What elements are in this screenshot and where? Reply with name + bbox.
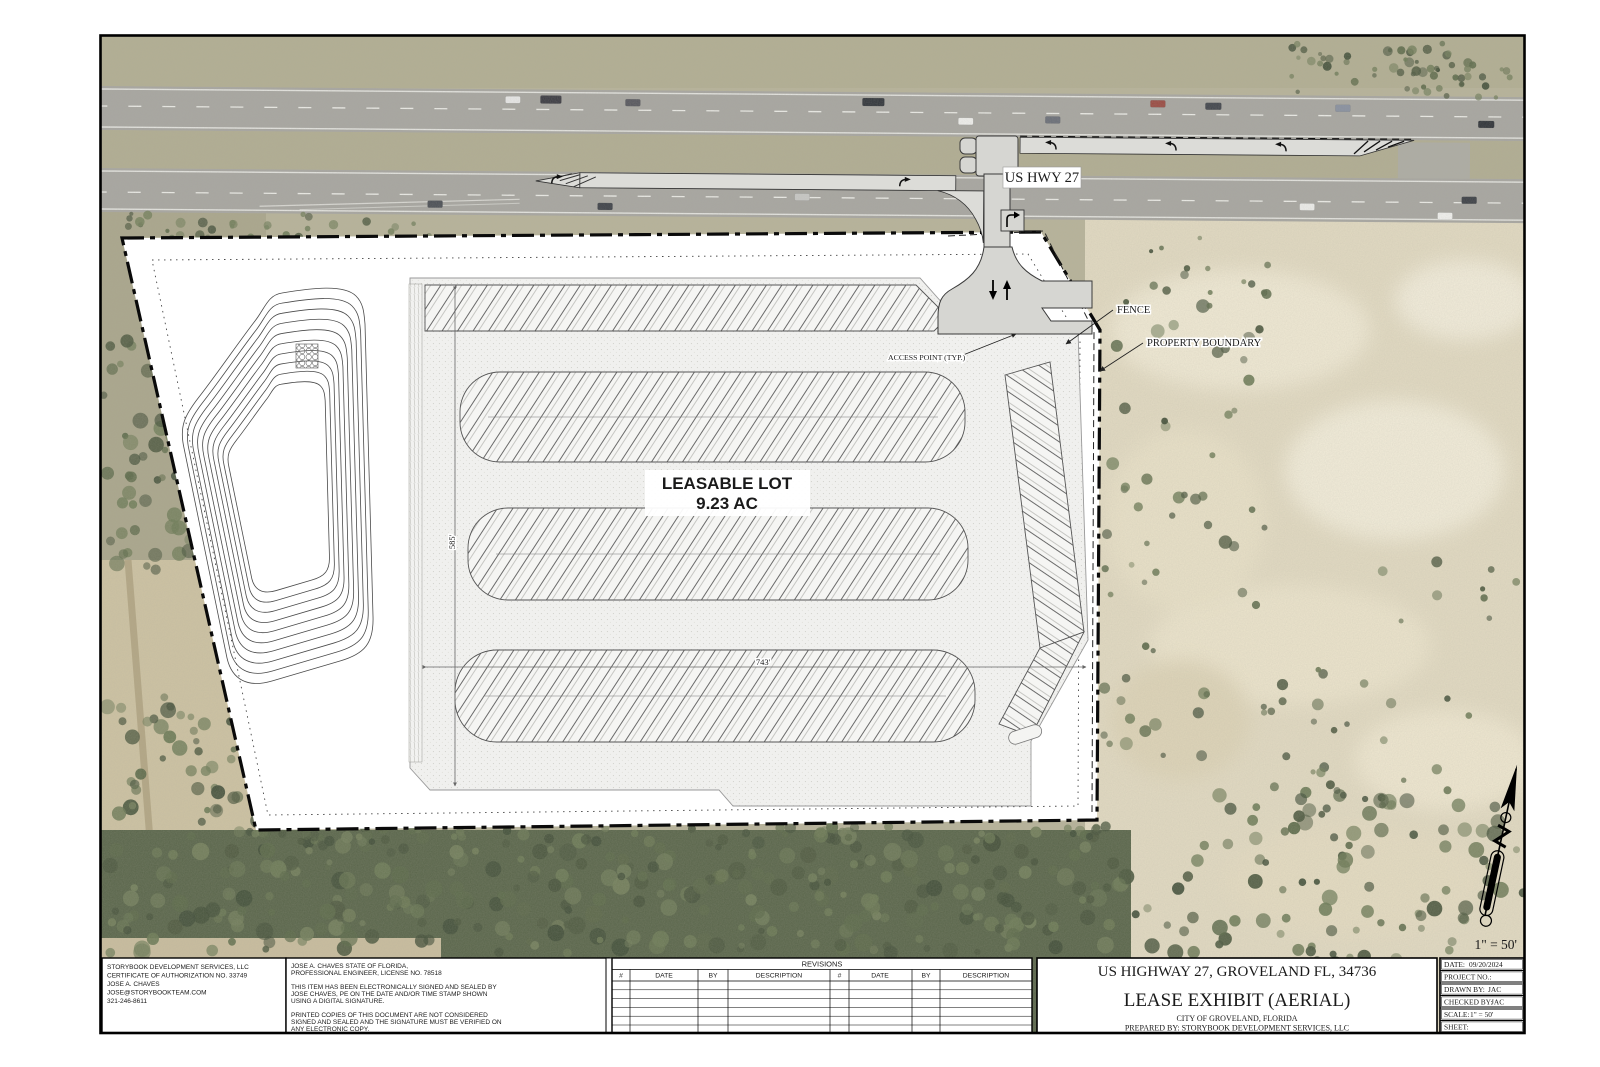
firm-line: STORYBOOK DEVELOPMENT SERVICES, LLC xyxy=(107,964,249,971)
aerial-photo: 585' 743' xyxy=(60,36,1581,1037)
sheet-label: SHEET: xyxy=(1444,1023,1469,1032)
spacer-box xyxy=(606,958,612,1033)
seal-line: PRINTED COPIES OF THIS DOCUMENT ARE NOT … xyxy=(291,1012,488,1019)
dim-vertical-text: 585' xyxy=(447,534,457,549)
firm-line: 321-246-8611 xyxy=(107,998,147,1005)
scale-value: 1" = 50' xyxy=(1470,1010,1494,1019)
col-date: DATE xyxy=(871,973,889,980)
firm-line: CERTIFICATE OF AUTHORIZATION NO. 33749 xyxy=(107,973,248,980)
access-point-label: ACCESS POINT (TYP.) xyxy=(888,353,966,362)
lot-label: LEASABLE LOT 9.23 AC xyxy=(645,470,810,516)
sheet-title: LEASE EXHIBIT (AERIAL) xyxy=(1124,990,1351,1011)
median-bulb xyxy=(960,157,977,173)
lease-exhibit-sheet: 585' 743' xyxy=(0,0,1600,1067)
date-value: 09/20/2024 xyxy=(1469,960,1503,969)
project-city: CITY OF GROVELAND, FLORIDA xyxy=(1176,1014,1297,1023)
title-strip: STORYBOOK DEVELOPMENT SERVICES, LLC CERT… xyxy=(102,958,1524,1033)
checked-by-value: JAC xyxy=(1491,998,1504,1007)
highway-label: US HWY 27 xyxy=(1003,167,1081,188)
decel-lane xyxy=(580,173,956,191)
firm-line: JOSE@STORYBOOKTEAM.COM xyxy=(107,990,207,997)
col-desc: DESCRIPTION xyxy=(963,973,1010,980)
seal-line: USING A DIGITAL SIGNATURE. xyxy=(291,998,385,1005)
lot-edge-strip xyxy=(409,284,422,762)
project-address: US HIGHWAY 27, GROVELAND FL, 34736 xyxy=(1098,964,1377,980)
seal-line: JOSE CHAVES, PE ON THE DATE AND/OR TIME … xyxy=(291,991,488,998)
col-num: # xyxy=(619,973,623,980)
seal-line: SIGNED AND SEALED AND THE SIGNATURE MUST… xyxy=(291,1019,502,1026)
dim-horizontal-text: 743' xyxy=(756,657,771,667)
property-boundary-label: PROPERTY BOUNDARY xyxy=(1147,338,1262,349)
drawn-by-label: DRAWN BY: xyxy=(1444,985,1485,994)
seal-line: THIS ITEM HAS BEEN ELECTRONICALLY SIGNED… xyxy=(291,984,497,991)
parking-row-top xyxy=(425,285,948,331)
revisions-title: REVISIONS xyxy=(802,960,843,969)
prepared-by: PREPARED BY: STORYBOOK DEVELOPMENT SERVI… xyxy=(1125,1024,1349,1033)
firm-line: JOSE A. CHAVES xyxy=(107,981,160,988)
scale-label: SCALE: xyxy=(1444,1010,1469,1019)
col-date: DATE xyxy=(655,973,673,980)
lot-area-text: 9.23 AC xyxy=(696,494,758,513)
highway-label-text: US HWY 27 xyxy=(1005,170,1079,186)
turn-arrow-box xyxy=(1001,210,1024,231)
project-no-label: PROJECT NO.: xyxy=(1444,973,1492,982)
seal-line: JOSE A. CHAVES STATE OF FLORIDA, xyxy=(291,963,408,970)
date-label: DATE: xyxy=(1444,960,1465,969)
fence-label: FENCE xyxy=(1117,305,1150,316)
seal-line: PROFESSIONAL ENGINEER, LICENSE NO. 78518 xyxy=(291,970,442,977)
col-by: BY xyxy=(921,973,931,980)
pond-structure xyxy=(296,344,318,368)
checked-by-label: CHECKED BY: xyxy=(1444,998,1492,1007)
col-desc: DESCRIPTION xyxy=(756,973,803,980)
col-by: BY xyxy=(708,973,718,980)
lot-title-text: LEASABLE LOT xyxy=(662,474,793,493)
scale-note: 1" = 50' xyxy=(1474,937,1517,952)
median-bulb xyxy=(960,138,977,154)
col-num: # xyxy=(838,973,842,980)
drawn-by-value: JAC xyxy=(1488,985,1501,994)
